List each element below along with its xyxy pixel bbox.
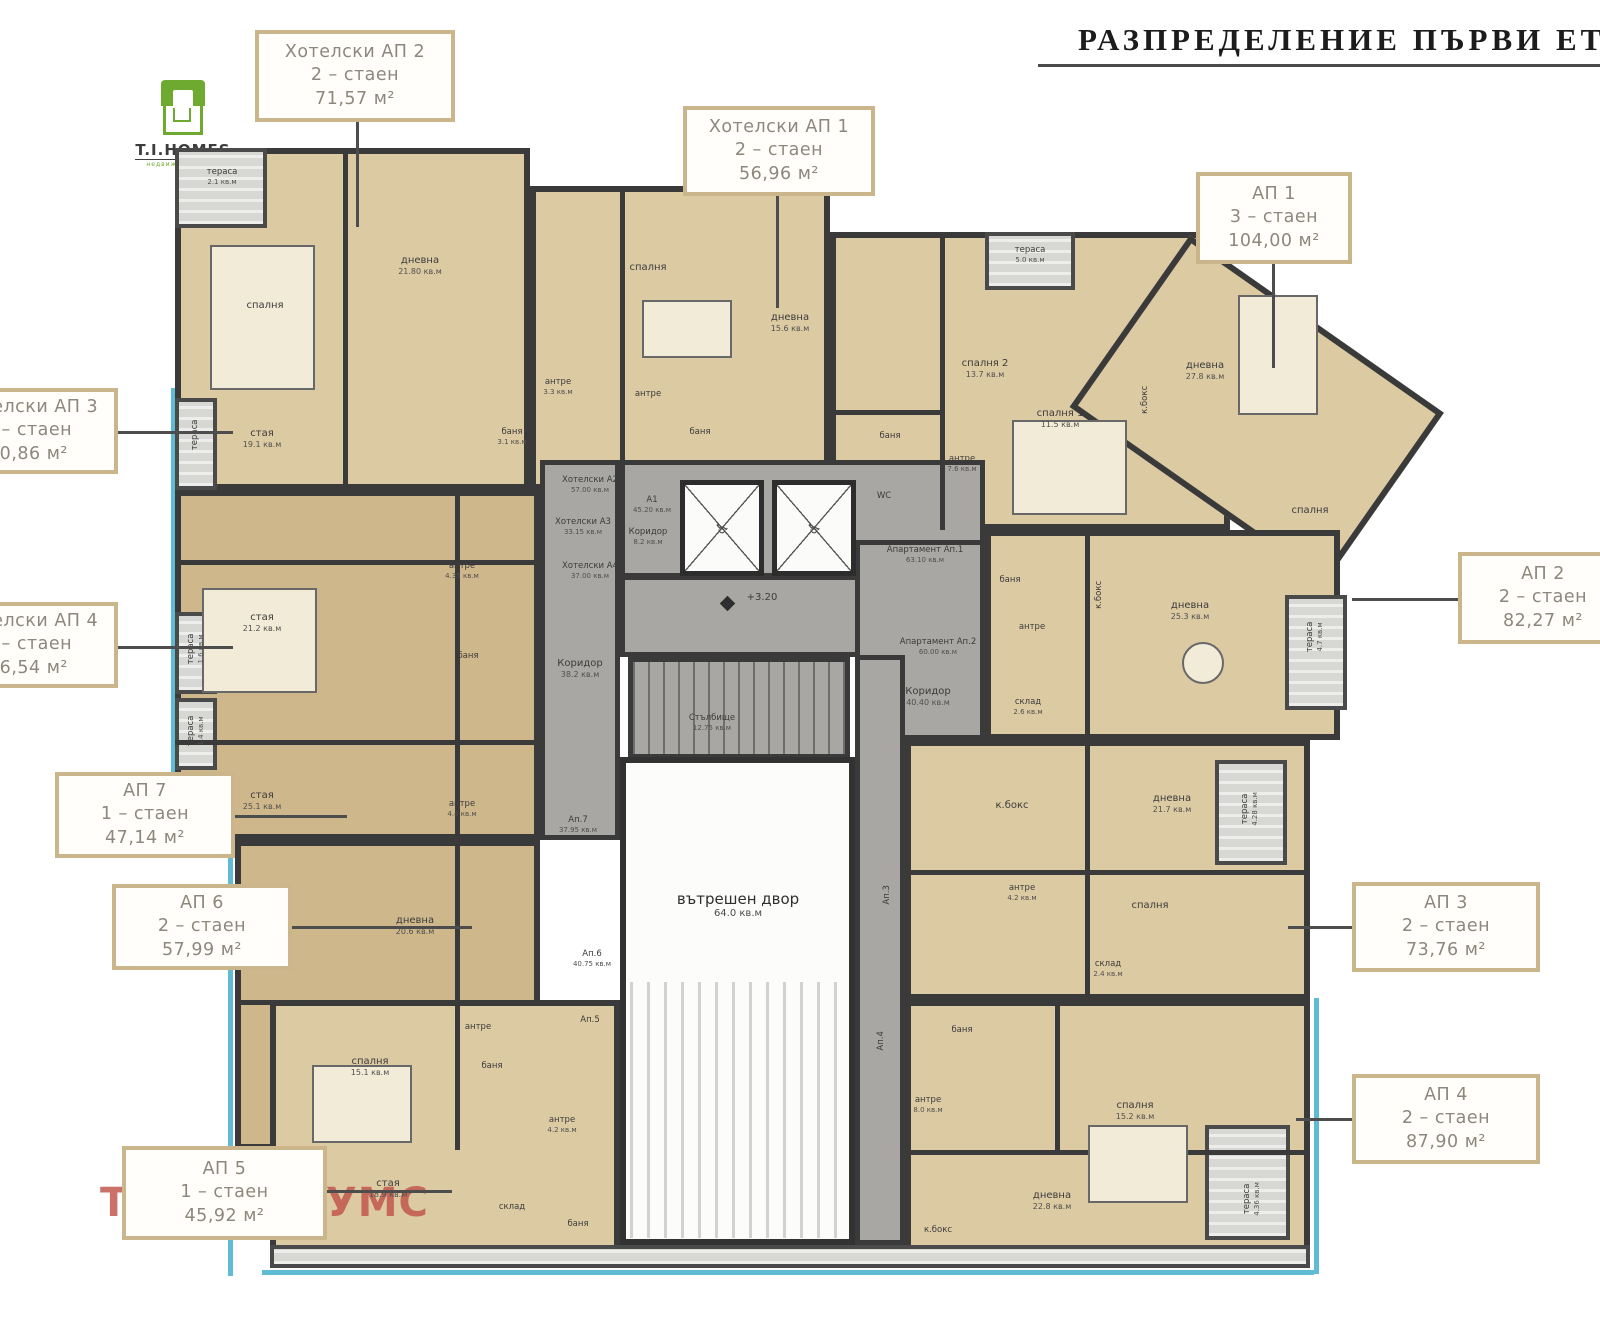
callout-line: 1 – стаен — [132, 1181, 317, 1204]
bed-icon — [202, 588, 317, 693]
callout-ap4: АП 42 – стаен87,90 м² — [1352, 1074, 1540, 1164]
bed-icon — [312, 1065, 412, 1143]
sofa-icon — [1238, 295, 1318, 415]
room-label: дневна21.7 кв.м — [1153, 793, 1191, 814]
room-label: баня — [567, 1220, 588, 1230]
callout-line: АП 2 — [1468, 563, 1600, 586]
room-label: склад2.6 кв.м — [1013, 698, 1042, 716]
room-label: Ап.4 — [877, 1031, 887, 1050]
leader-line-ap6 — [292, 926, 472, 929]
callout-line: Хотелски АП 3 — [0, 396, 108, 419]
courtyard-label: вътрешен двор 64.0 кв.м — [677, 890, 799, 919]
callout-hotel-ap3: Хотелски АП 31 – стаен40,86 м² — [0, 388, 118, 474]
room-label: тераса — [191, 420, 201, 451]
room-label: антре4.4 кв.м — [447, 800, 476, 818]
room-label: баня — [951, 1026, 972, 1036]
room-label: стая18.9 кв.м — [369, 1178, 407, 1199]
room-label: спалня — [1291, 505, 1328, 517]
room-label: А145.20 кв.м — [633, 496, 671, 514]
room-label: тераса5.0 кв.м — [1015, 246, 1046, 264]
room-label: Коридор8.2 кв.м — [629, 528, 668, 546]
wall — [235, 1000, 540, 1005]
room-label: антре — [1019, 623, 1045, 633]
callout-line: Хотелски АП 4 — [0, 610, 108, 633]
wall — [175, 560, 540, 565]
callout-line: 73,76 м² — [1362, 939, 1530, 962]
room-label: дневна22.8 кв.м — [1033, 1190, 1071, 1211]
room-label: дневна15.6 кв.м — [771, 312, 809, 333]
wall — [175, 740, 540, 745]
callout-line: 1 – стаен — [0, 633, 108, 656]
room-label: антре7.6 кв.м — [947, 455, 976, 473]
callout-line: 3 – стаен — [1206, 206, 1342, 229]
callout-line: АП 3 — [1362, 892, 1530, 915]
callout-line: Хотелски АП 1 — [693, 116, 865, 139]
room-label: к.бокс — [1095, 581, 1105, 609]
room-label: спалня 213.7 кв.м — [962, 358, 1009, 379]
terrace — [175, 148, 267, 228]
callout-ap7: АП 71 – стаен47,14 м² — [55, 772, 235, 858]
callout-hotel-ap2: Хотелски АП 22 – стаен71,57 м² — [255, 30, 455, 122]
balcony-strip — [270, 1245, 1310, 1268]
leader-line-hotel-ap2 — [356, 122, 359, 227]
room-label: Хотелски А257.00 кв.м — [562, 476, 618, 494]
callout-line: 40,86 м² — [0, 443, 108, 466]
room-label: антре8.0 кв.м — [913, 1096, 942, 1114]
callout-line: 47,14 м² — [65, 827, 225, 850]
room-label: спалня — [246, 300, 283, 312]
room-label: спалня — [1131, 900, 1168, 912]
floor-plan-page: { "title": {"text": "РАЗПРЕДЕЛЕНИЕ ПЪРВИ… — [0, 0, 1600, 1319]
leader-line-ap3 — [1288, 926, 1352, 929]
wall — [343, 148, 348, 490]
bed-icon — [1088, 1125, 1188, 1203]
staircase — [628, 657, 850, 759]
room-label: баня — [999, 576, 1020, 586]
room-label: к.бокс — [924, 1226, 952, 1236]
callout-ap2: АП 22 – стаен82,27 м² — [1458, 552, 1600, 644]
level-mark: +3.20 — [747, 592, 778, 604]
terrace — [1285, 595, 1347, 710]
room-label: тераса1.4 кв.м — [187, 716, 205, 747]
room-label: склад — [499, 1203, 525, 1213]
leader-line-ap7 — [235, 815, 347, 818]
room-label: Апартамент Ап.163.10 кв.м — [887, 546, 963, 564]
callout-line: АП 7 — [65, 780, 225, 803]
leader-line-hotel-ap3 — [118, 431, 233, 434]
callout-line: 56,96 м² — [693, 163, 865, 186]
accent-line — [262, 1270, 1314, 1275]
room-label: спалня15.2 кв.м — [1116, 1100, 1154, 1121]
leader-line-ap5 — [327, 1190, 452, 1193]
callout-hotel-ap4: Хотелски АП 41 – стаен46,54 м² — [0, 602, 118, 688]
wall — [620, 186, 625, 460]
wall — [905, 870, 1310, 875]
room-label: Хотелски А333.15 кв.м — [555, 518, 611, 536]
page-title: РАЗПРЕДЕЛЕНИЕ ПЪРВИ ЕТАЖ — [1078, 22, 1600, 58]
wall — [1085, 530, 1090, 740]
home-icon — [156, 80, 210, 138]
callout-line: 2 – стаен — [1362, 1107, 1530, 1130]
callout-ap3: АП 32 – стаен73,76 м² — [1352, 882, 1540, 972]
title-underline — [1038, 64, 1600, 67]
room-label: спалня — [629, 262, 666, 274]
wheelchair-icon: ♿ — [711, 517, 732, 539]
wall — [455, 840, 460, 1150]
callout-line: 2 – стаен — [265, 64, 445, 87]
room-label: склад2.4 кв.м — [1093, 960, 1122, 978]
callout-line: 71,57 м² — [265, 88, 445, 111]
leader-line-hotel-ap4 — [118, 646, 233, 649]
room-label: тераса4.28 кв.м — [1241, 792, 1259, 826]
room-label: баня — [481, 1062, 502, 1072]
callout-line: 2 – стаен — [1468, 586, 1600, 609]
wall — [1085, 740, 1090, 1000]
callout-line: АП 6 — [122, 892, 282, 915]
room-label: к.бокс — [1141, 386, 1151, 414]
room-label: дневна25.3 кв.м — [1171, 600, 1209, 621]
room-label: тераса4.7 кв.м — [1306, 622, 1324, 653]
courtyard-ramp — [630, 982, 845, 1238]
room-label: баня — [689, 428, 710, 438]
room-label: Хотелски А437.00 кв.м — [562, 562, 618, 580]
room-label: антре — [635, 390, 661, 400]
room-label: антре3.3 кв.м — [543, 378, 572, 396]
room-label: Ап.640.75 кв.м — [573, 950, 611, 968]
leader-line-hotel-ap1 — [776, 196, 779, 308]
elevator-icon: ♿ — [772, 480, 856, 576]
room-label: Коридор40.40 кв.м — [905, 686, 950, 707]
room-label: Ап.3 — [883, 885, 893, 904]
room-label: Ап.737.95 кв.м — [559, 816, 597, 834]
room-label: баня — [879, 432, 900, 442]
room-label: Стълбище12.75 кв.м — [689, 714, 735, 732]
room-label: дневна27.8 кв.м — [1186, 360, 1224, 381]
room-label: дневна21.80 кв.м — [398, 255, 442, 276]
wall — [830, 410, 942, 415]
callout-line: АП 4 — [1362, 1084, 1530, 1107]
room-label: тераса2.1 кв.м — [207, 168, 238, 186]
bed-icon — [1012, 420, 1127, 515]
callout-line: 1 – стаен — [0, 419, 108, 442]
callout-line: 2 – стаен — [122, 915, 282, 938]
callout-ap1: АП 13 – стаен104,00 м² — [1196, 172, 1352, 264]
callout-line: 2 – стаен — [693, 139, 865, 162]
callout-hotel-ap1: Хотелски АП 12 – стаен56,96 м² — [683, 106, 875, 196]
accent-line — [1314, 998, 1319, 1274]
room-label: антре4.35 кв.м — [445, 562, 479, 580]
callout-line: АП 5 — [132, 1158, 317, 1181]
room-label: Ап.5 — [580, 1016, 599, 1026]
callout-line: 46,54 м² — [0, 657, 108, 680]
leader-line-ap1 — [1272, 264, 1275, 368]
leader-line-ap2 — [1352, 598, 1458, 601]
room-label: Коридор38.2 кв.м — [557, 658, 602, 679]
room-label: WC — [877, 492, 891, 502]
table-icon — [642, 300, 732, 358]
round-table-icon — [1182, 642, 1224, 684]
wall — [1055, 1000, 1060, 1150]
callout-line: 45,92 м² — [132, 1205, 317, 1228]
wheelchair-icon: ♿ — [803, 517, 824, 539]
callout-line: 104,00 м² — [1206, 230, 1342, 253]
room-label: антре4.2 кв.м — [547, 1116, 576, 1134]
room-label: Апартамент Ап.260.00 кв.м — [900, 638, 976, 656]
room-label: спалня15.1 кв.м — [351, 1056, 389, 1077]
wall — [455, 490, 460, 840]
room-label: баня3.1 кв.м — [497, 428, 526, 446]
callout-line: 1 – стаен — [65, 803, 225, 826]
callout-line: 57,99 м² — [122, 939, 282, 962]
room-label: стая21.2 кв.м — [243, 612, 281, 633]
callout-ap6: АП 62 – стаен57,99 м² — [112, 884, 292, 970]
room-label: стая25.1 кв.м — [243, 790, 281, 811]
bed-icon — [210, 245, 315, 390]
room-label: спалня 111.5 кв.м — [1037, 408, 1084, 429]
room-label: антре4.2 кв.м — [1007, 884, 1036, 902]
callout-ap5: АП 51 – стаен45,92 м² — [122, 1146, 327, 1240]
corridor-right-strip — [855, 655, 905, 1245]
room-label: антре — [465, 1023, 491, 1033]
room-label: к.бокс — [995, 800, 1028, 812]
room-label: стая19.1 кв.м — [243, 428, 281, 449]
wall — [940, 232, 945, 530]
callout-line: 82,27 м² — [1468, 610, 1600, 633]
callout-line: 87,90 м² — [1362, 1131, 1530, 1154]
room-label: баня — [457, 652, 478, 662]
elevator-icon: ♿ — [680, 480, 764, 576]
leader-line-ap4 — [1296, 1118, 1352, 1121]
callout-line: АП 1 — [1206, 183, 1342, 206]
callout-line: 2 – стаен — [1362, 915, 1530, 938]
room-label: тераса4.36 кв.м — [1243, 1182, 1261, 1216]
callout-line: Хотелски АП 2 — [265, 41, 445, 64]
